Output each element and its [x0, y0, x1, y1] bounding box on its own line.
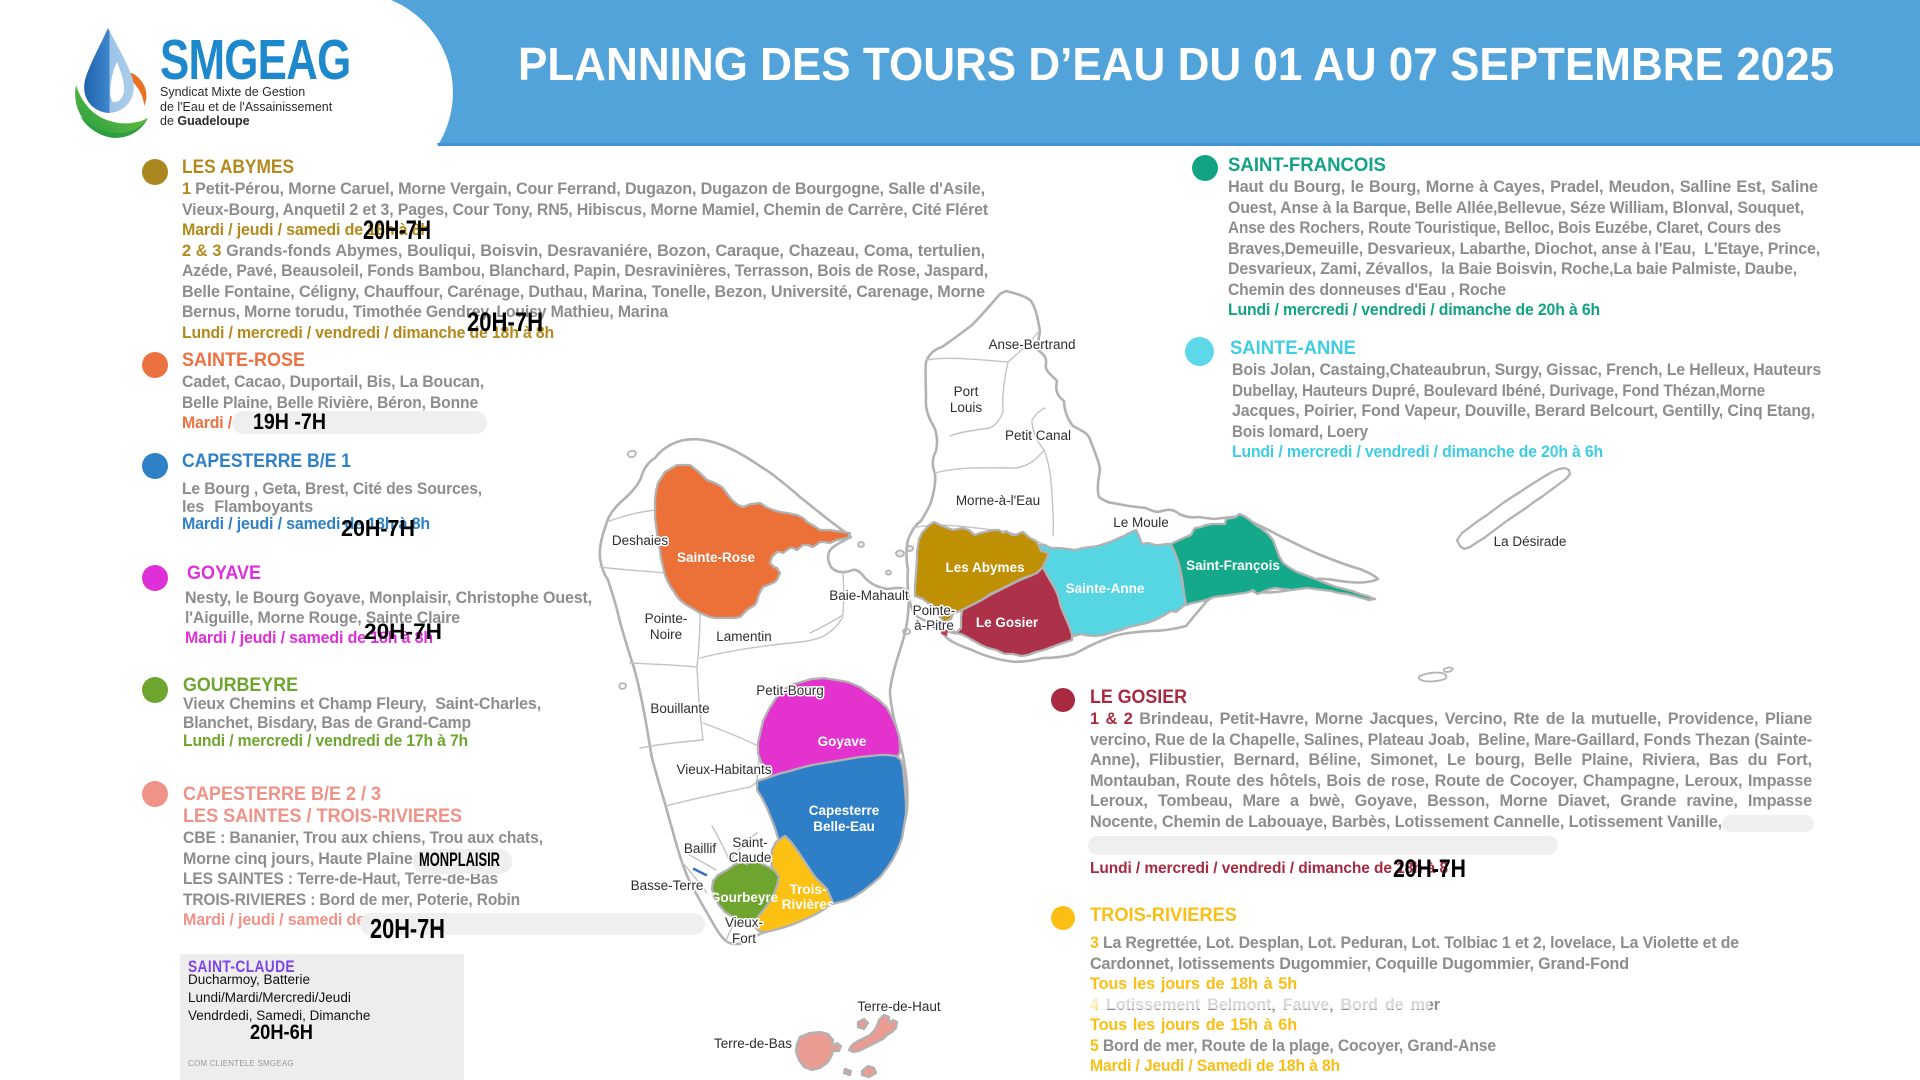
- svg-text:Gourbeyre: Gourbeyre: [710, 890, 779, 905]
- svg-text:Sainte-Rose: Sainte-Rose: [677, 550, 756, 565]
- svg-text:Noire: Noire: [650, 627, 682, 642]
- svg-text:La Désirade: La Désirade: [1494, 534, 1567, 549]
- svg-text:Sainte-Anne: Sainte-Anne: [1066, 581, 1145, 596]
- svg-text:Les Abymes: Les Abymes: [945, 560, 1024, 575]
- svg-text:Baillif: Baillif: [684, 841, 717, 856]
- svg-text:Belle-Eau: Belle-Eau: [813, 819, 875, 834]
- svg-text:Claude: Claude: [729, 850, 772, 865]
- svg-text:Saint-François: Saint-François: [1186, 558, 1280, 573]
- svg-text:Saint-: Saint-: [732, 835, 767, 850]
- svg-text:Baie-Mahault: Baie-Mahault: [829, 588, 909, 603]
- svg-text:Deshaies: Deshaies: [612, 533, 669, 548]
- svg-text:Terre-de-Haut: Terre-de-Haut: [857, 999, 941, 1014]
- svg-text:Vieux-: Vieux-: [725, 915, 763, 930]
- svg-text:Capesterre: Capesterre: [809, 803, 880, 818]
- svg-text:à-Pitre: à-Pitre: [914, 618, 954, 633]
- svg-text:Bouillante: Bouillante: [650, 701, 709, 716]
- svg-text:Pointe-: Pointe-: [645, 611, 688, 626]
- svg-text:Port: Port: [954, 384, 979, 399]
- svg-text:Trois-: Trois-: [790, 882, 827, 897]
- svg-text:Basse-Terre: Basse-Terre: [631, 878, 704, 893]
- svg-text:Fort: Fort: [732, 931, 756, 946]
- svg-text:Goyave: Goyave: [818, 734, 867, 749]
- svg-text:Pointe-: Pointe-: [913, 603, 956, 618]
- svg-text:Louis: Louis: [950, 400, 983, 415]
- svg-text:Morne-à-l'Eau: Morne-à-l'Eau: [956, 493, 1040, 508]
- svg-text:Le Gosier: Le Gosier: [976, 615, 1039, 630]
- svg-text:Vieux-Habitants: Vieux-Habitants: [676, 762, 771, 777]
- svg-text:Rivières: Rivières: [782, 897, 835, 912]
- svg-text:Lamentin: Lamentin: [716, 629, 772, 644]
- svg-text:Le Moule: Le Moule: [1113, 515, 1169, 530]
- svg-text:Petit Canal: Petit Canal: [1005, 428, 1071, 443]
- svg-text:Petit-Bourg: Petit-Bourg: [756, 683, 824, 698]
- svg-text:Terre-de-Bas: Terre-de-Bas: [714, 1036, 792, 1051]
